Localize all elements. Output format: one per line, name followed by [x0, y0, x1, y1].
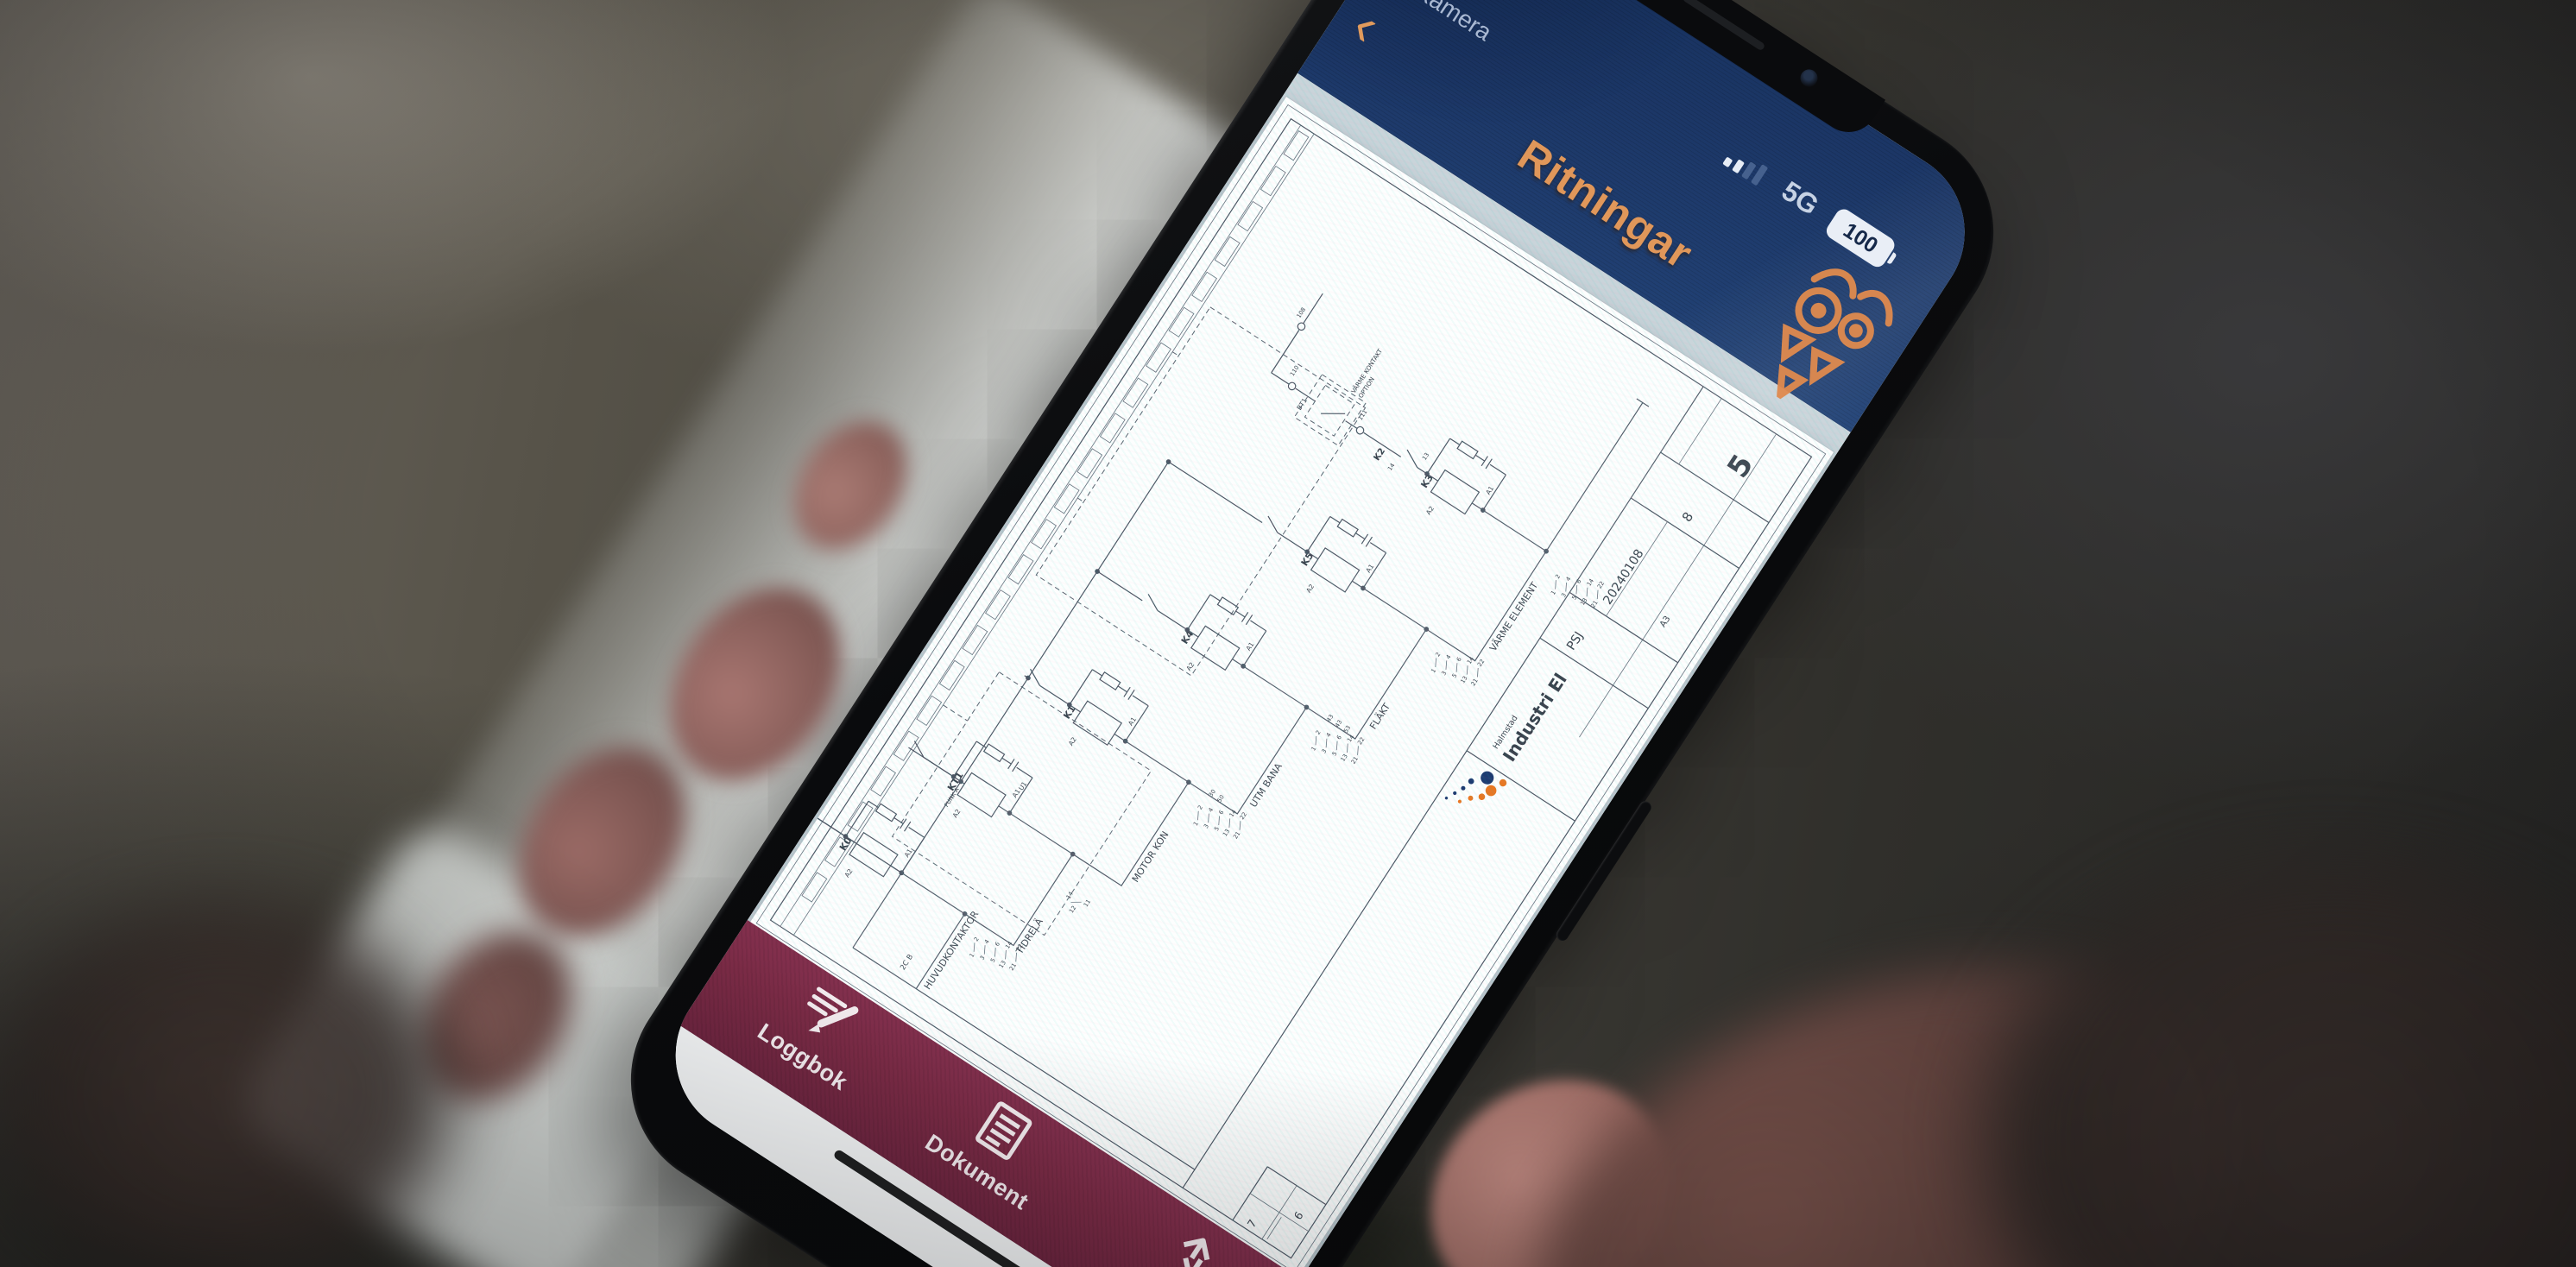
svg-text:1: 1 — [1192, 820, 1200, 827]
svg-text:14: 14 — [1228, 809, 1237, 819]
svg-text:1: 1 — [1430, 667, 1437, 674]
svg-text:3: 3 — [1440, 670, 1448, 677]
photo-scene: 9:47 Kamera 5G 100 ‹ Ritningar — [0, 0, 2576, 1267]
svg-text:1: 1 — [969, 952, 976, 959]
svg-text:21: 21 — [1589, 599, 1599, 609]
svg-text:50: 50 — [1216, 794, 1226, 804]
document-icon — [971, 1098, 1036, 1164]
svg-text:2: 2 — [973, 936, 981, 942]
svg-text:22: 22 — [1356, 736, 1366, 747]
svg-text:53: 53 — [1342, 724, 1352, 734]
svg-text:2: 2 — [1196, 804, 1204, 811]
svg-text:7: 7 — [1245, 1217, 1260, 1230]
svg-text:A2: A2 — [1067, 735, 1078, 747]
svg-text:21: 21 — [1232, 830, 1241, 841]
svg-text:A3: A3 — [1658, 615, 1672, 629]
svg-text:108: 108 — [1295, 306, 1307, 319]
svg-text:22: 22 — [1596, 580, 1606, 590]
svg-text:2: 2 — [1315, 729, 1323, 736]
svg-text:1: 1 — [1310, 746, 1317, 753]
svg-text:2C B: 2C B — [898, 952, 914, 971]
signal-bars-icon — [1722, 145, 1777, 192]
svg-text:14: 14 — [1386, 462, 1396, 472]
back-to-app-breadcrumb[interactable]: Kamera — [1411, 0, 1497, 47]
svg-text:5: 5 — [1213, 825, 1221, 832]
svg-text:PSJ: PSJ — [1564, 629, 1586, 652]
svg-text:2: 2 — [1434, 651, 1442, 658]
svg-text:6: 6 — [1291, 1209, 1306, 1222]
svg-text:8: 8 — [1679, 509, 1696, 525]
svg-text:6: 6 — [1455, 656, 1463, 663]
svg-text:4: 4 — [983, 938, 991, 945]
svg-text:30: 30 — [1208, 788, 1217, 798]
svg-text:6: 6 — [1335, 734, 1343, 741]
svg-text:20240108: 20240108 — [1601, 547, 1646, 608]
svg-text:FLÄKT: FLÄKT — [1367, 701, 1392, 731]
network-type: 5G — [1776, 175, 1824, 222]
svg-text:4: 4 — [1564, 576, 1572, 583]
svg-text:13: 13 — [1459, 675, 1468, 685]
svg-text:A2: A2 — [1304, 583, 1316, 594]
svg-text:13: 13 — [1339, 753, 1348, 763]
svg-text:VÄRME ELEMENT: VÄRME ELEMENT — [1487, 580, 1541, 653]
logbook-pen-icon — [793, 981, 864, 1051]
svg-text:12: 12 — [1068, 905, 1077, 915]
svg-text:13: 13 — [998, 960, 1007, 970]
svg-text:11: 11 — [1083, 898, 1092, 909]
svg-text:4: 4 — [1325, 732, 1333, 739]
svg-text:21: 21 — [1350, 755, 1360, 766]
svg-text:A2: A2 — [951, 808, 963, 819]
svg-text:6: 6 — [994, 941, 1001, 948]
svg-text:111: 111 — [1357, 408, 1369, 421]
svg-text:22: 22 — [1239, 811, 1248, 822]
svg-text:21: 21 — [1469, 678, 1479, 688]
svg-text:21: 21 — [1008, 962, 1018, 973]
svg-text:5: 5 — [989, 957, 997, 964]
svg-text:14: 14 — [1346, 734, 1355, 744]
svg-text:3: 3 — [979, 955, 987, 961]
svg-text:3: 3 — [1203, 823, 1210, 829]
svg-text:1: 1 — [1550, 589, 1557, 596]
svg-text:13: 13 — [1222, 828, 1231, 838]
svg-text:5: 5 — [1331, 750, 1339, 757]
svg-text:4: 4 — [1445, 653, 1453, 660]
svg-text:5: 5 — [1450, 672, 1458, 679]
svg-text:110: 110 — [1289, 364, 1301, 377]
svg-text:4: 4 — [1207, 807, 1215, 814]
svg-text:14: 14 — [1004, 940, 1013, 950]
svg-text:5: 5 — [1720, 449, 1759, 484]
svg-text:14: 14 — [1466, 655, 1475, 665]
svg-text:A2: A2 — [843, 867, 855, 879]
svg-text:43: 43 — [1325, 713, 1335, 723]
svg-text:2: 2 — [1554, 573, 1562, 580]
svg-text:43: 43 — [1334, 719, 1343, 729]
svg-text:14: 14 — [1586, 577, 1595, 588]
svg-text:HUVUDKONTAKTOR: HUVUDKONTAKTOR — [922, 909, 982, 992]
svg-text:22: 22 — [1476, 658, 1486, 668]
svg-text:13: 13 — [1421, 451, 1430, 462]
svg-text:A2: A2 — [1424, 505, 1436, 516]
svg-text:6: 6 — [1217, 809, 1225, 816]
svg-text:3: 3 — [1321, 747, 1329, 754]
svg-text:K2: K2 — [1373, 447, 1387, 463]
front-camera-icon — [1797, 66, 1822, 91]
svg-text:14: 14 — [1065, 891, 1075, 901]
svg-text:MOTOR KON: MOTOR KON — [1130, 829, 1171, 885]
hand-knuckles — [0, 906, 449, 1267]
svg-text:UTM BANA: UTM BANA — [1247, 760, 1285, 809]
